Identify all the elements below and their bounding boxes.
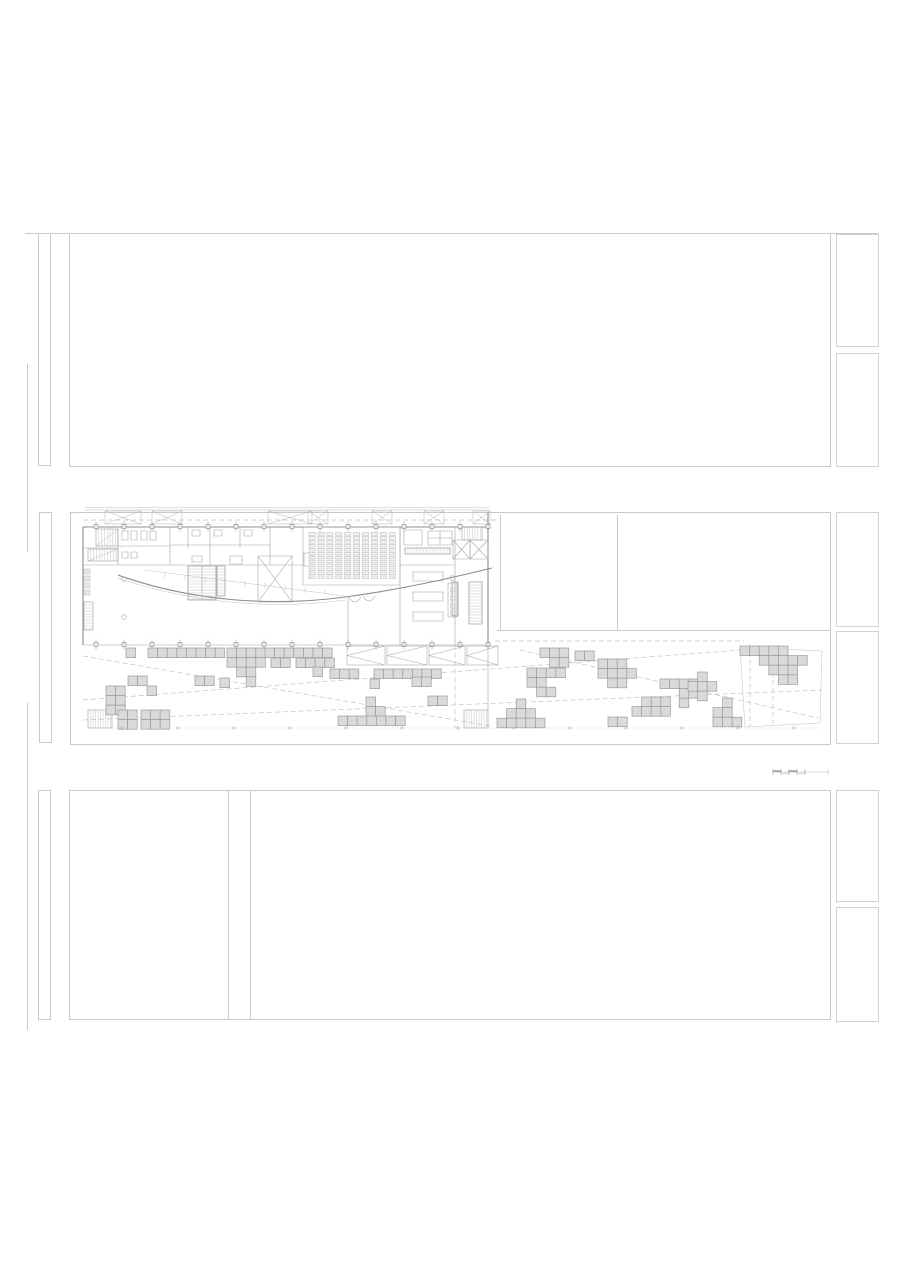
top-sheet-panel bbox=[69, 233, 831, 467]
left-margin-line-lower bbox=[27, 703, 28, 1030]
sidewalk-lines bbox=[85, 508, 490, 511]
drawing-sheet bbox=[0, 0, 905, 1280]
mid-title-box-2 bbox=[836, 631, 879, 744]
bottom-margin-strip bbox=[38, 790, 51, 1020]
site-boundary-dashes bbox=[83, 520, 822, 728]
bottom-title-box-2 bbox=[836, 907, 879, 1022]
graphic-scale-bar bbox=[772, 764, 830, 776]
left-margin-line-upper bbox=[27, 364, 28, 552]
bottom-title-box-1 bbox=[836, 790, 879, 902]
top-margin-strip bbox=[38, 233, 51, 466]
mid-title-box-1 bbox=[836, 512, 879, 627]
top-title-box-2 bbox=[836, 353, 879, 467]
stair-hatches bbox=[84, 527, 488, 728]
plaza-furniture-squares bbox=[106, 646, 807, 729]
plaza-canopy-triangles bbox=[347, 646, 498, 665]
bottom-panel-divider-2 bbox=[250, 790, 251, 1020]
floor-plan-drawing bbox=[70, 505, 831, 746]
bottom-sheet-panel bbox=[69, 790, 831, 1020]
top-title-box-1 bbox=[836, 234, 879, 347]
mid-margin-strip bbox=[39, 512, 52, 743]
building-outer-walls bbox=[83, 512, 492, 645]
bottom-panel-divider-1 bbox=[228, 790, 229, 1020]
auditorium-seating bbox=[309, 533, 395, 579]
